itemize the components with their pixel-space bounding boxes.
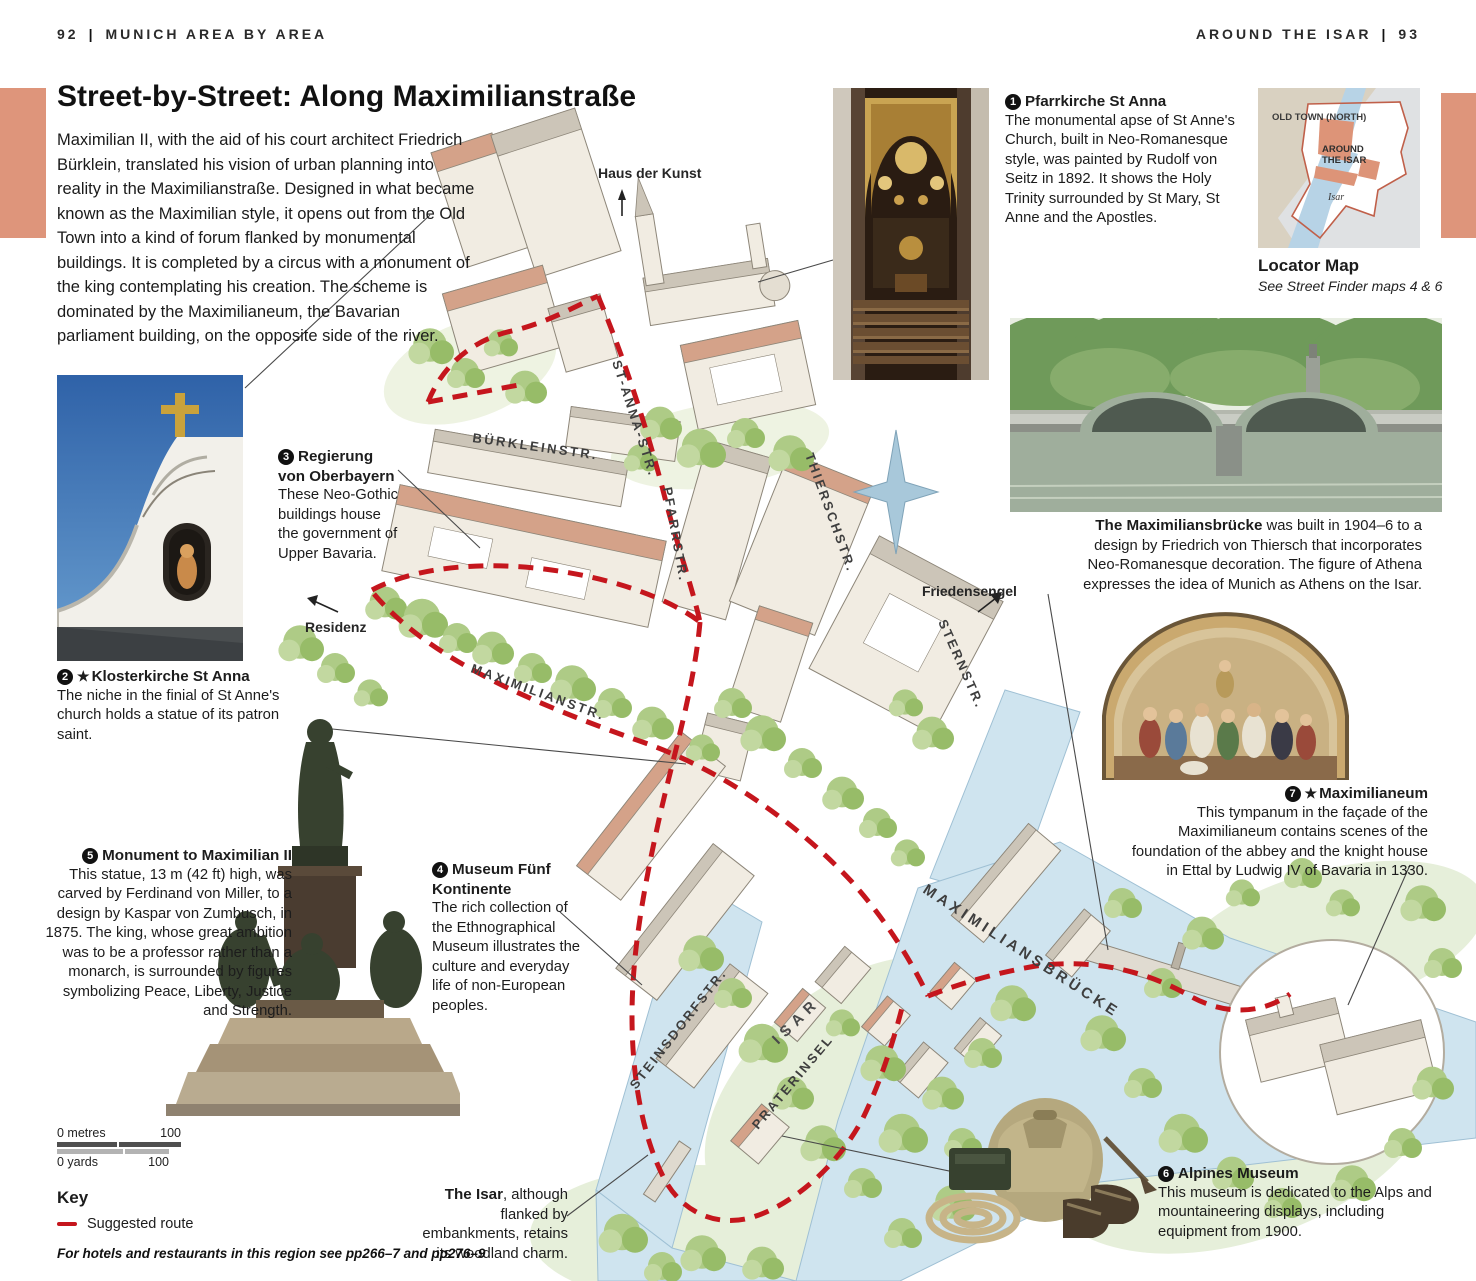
annotation-regierung: 3Regierung von Oberbayern These Neo-Goth… xyxy=(278,447,404,564)
annotation-body: The monumental apse of St Anne's Church,… xyxy=(1005,112,1243,229)
annotation-body: This tympanum in the façade of the Maxim… xyxy=(1128,804,1428,882)
annotation-title: Alpines Museum xyxy=(1178,1165,1299,1182)
header-right: AROUND THE ISAR|93 xyxy=(1196,26,1420,42)
annotation-title: Pfarrkirche St Anna xyxy=(1025,93,1166,110)
scale-metres-label: 0 metres xyxy=(57,1126,106,1140)
annotation-title: Klosterkirche St Anna xyxy=(92,668,250,685)
route-swatch-icon xyxy=(57,1222,77,1226)
locator-caption-title: Locator Map xyxy=(1258,256,1359,276)
photo-alpine-equipment xyxy=(895,1090,1160,1260)
section-title-right: AROUND THE ISAR xyxy=(1196,26,1372,42)
annotation-body: These Neo-Gothic buildings house the gov… xyxy=(278,486,404,564)
page-title: Street-by-Street: Along Maximilianstraße xyxy=(57,80,636,114)
annotation-body: The rich collection of the Ethnographica… xyxy=(432,899,592,1016)
locator-map: OLD TOWN (NORTH) AROUND THE ISAR Isar xyxy=(1258,88,1420,248)
annotation-maximilianeum: 7★Maximilianeum This tympanum in the faç… xyxy=(1128,784,1428,882)
annotation-klosterkirche: 2★Klosterkirche St Anna The niche in the… xyxy=(57,667,303,745)
locator-isar-label: Isar xyxy=(1327,192,1344,203)
number-badge: 4 xyxy=(432,862,448,878)
number-badge: 1 xyxy=(1005,94,1021,110)
annotation-body: This museum is dedicated to the Alps and… xyxy=(1158,1184,1448,1243)
annotation-title: Maximilianeum xyxy=(1319,785,1428,802)
west-arrow-icon xyxy=(314,601,338,612)
section-title-left: MUNICH AREA BY AREA xyxy=(106,26,328,42)
header-separator: | xyxy=(79,26,106,42)
caption-title: The Maximiliansbrücke xyxy=(1095,517,1262,534)
photo-pfarrkirche-apse xyxy=(833,88,989,380)
annotation-pfarrkirche: 1Pfarrkirche St Anna The monumental apse… xyxy=(1005,92,1243,229)
number-badge: 2 xyxy=(57,669,73,685)
label-friedensengel: Friedensengel xyxy=(922,583,1017,599)
page-number-left: 92 xyxy=(57,26,79,42)
footer-note: For hotels and restaurants in this regio… xyxy=(57,1246,485,1261)
locator-caption-sub: See Street Finder maps 4 & 6 xyxy=(1258,278,1442,294)
scale-bar-metres xyxy=(57,1142,181,1147)
scale-bar-yards xyxy=(57,1149,169,1154)
label-haus-der-kunst: Haus der Kunst xyxy=(598,165,702,181)
annotation-title: Museum Fünf Kontinente xyxy=(432,861,551,898)
compass-rose-icon xyxy=(854,430,938,554)
locator-around-isar-1: AROUND xyxy=(1322,144,1364,155)
annotation-body: This statue, 13 m (42 ft) high, was carv… xyxy=(40,866,292,1022)
annotation-title: Regierung von Oberbayern xyxy=(278,448,394,485)
annotation-museum-fuenf: 4Museum Fünf Kontinente The rich collect… xyxy=(432,860,592,1016)
page-number-right: 93 xyxy=(1398,26,1420,42)
guidebook-page: 92|MUNICH AREA BY AREA AROUND THE ISAR|9… xyxy=(0,0,1476,1281)
scale-bar: 0 metres100 0 yards100 xyxy=(57,1126,181,1169)
map-church xyxy=(627,157,792,326)
photo-maximilianeum-tympanum xyxy=(1098,598,1353,780)
locator-around-isar-2: THE ISAR xyxy=(1322,155,1366,166)
key-title: Key xyxy=(57,1188,88,1208)
star-icon: ★ xyxy=(1305,785,1318,801)
header-left: 92|MUNICH AREA BY AREA xyxy=(57,26,327,42)
scale-metres-value: 100 xyxy=(160,1126,181,1140)
photo-maximiliansbruecke xyxy=(1010,318,1442,512)
photo-klosterkirche xyxy=(57,375,243,661)
scale-yards-value: 100 xyxy=(148,1155,169,1169)
header-separator-right: | xyxy=(1372,26,1399,42)
annotation-body: The niche in the finial of St Anne's chu… xyxy=(57,687,303,746)
caption-maximiliansbruecke: The Maximiliansbrücke was built in 1904–… xyxy=(1058,516,1422,595)
key-row: Suggested route xyxy=(57,1216,193,1232)
intro-paragraph: Maximilian II, with the aid of his court… xyxy=(57,128,481,349)
scale-yards-label: 0 yards xyxy=(57,1155,98,1169)
annotation-title: Monument to Maximilian II xyxy=(102,847,292,864)
number-badge: 7 xyxy=(1285,786,1301,802)
annotation-monument: 5Monument to Maximilian II This statue, … xyxy=(40,846,292,1022)
star-icon: ★ xyxy=(77,668,90,684)
caption-title: The Isar xyxy=(445,1186,503,1203)
number-badge: 3 xyxy=(278,449,294,465)
number-badge: 5 xyxy=(82,848,98,864)
key-route-label: Suggested route xyxy=(87,1216,193,1232)
number-badge: 6 xyxy=(1158,1166,1174,1182)
annotation-alpines: 6Alpines Museum This museum is dedicated… xyxy=(1158,1164,1448,1242)
locator-old-town-label: OLD TOWN (NORTH) xyxy=(1272,112,1366,123)
label-residenz: Residenz xyxy=(305,619,366,635)
